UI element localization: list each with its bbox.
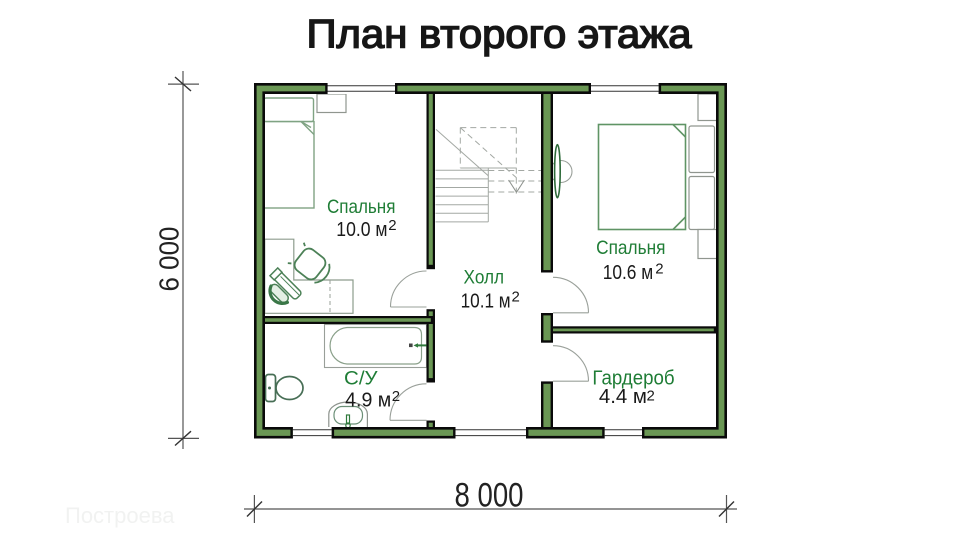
svg-text:4.9 м: 4.9 м: [345, 389, 391, 412]
svg-text:10.1 м: 10.1 м: [461, 290, 511, 312]
svg-text:План второго этажа: План второго этажа: [307, 13, 693, 57]
svg-text:2: 2: [512, 289, 520, 306]
svg-text:2: 2: [392, 388, 400, 405]
svg-text:2: 2: [647, 388, 655, 405]
svg-text:10.6 м: 10.6 м: [603, 262, 654, 284]
svg-text:Спальня: Спальня: [327, 196, 396, 218]
svg-text:10.0 м: 10.0 м: [336, 219, 387, 241]
svg-text:2: 2: [388, 217, 396, 234]
svg-text:4.4 м: 4.4 м: [599, 386, 647, 408]
svg-text:Спальня: Спальня: [596, 237, 665, 259]
svg-text:2: 2: [655, 261, 663, 278]
svg-text:Построева: Построева: [65, 503, 175, 528]
svg-text:С/У: С/У: [344, 368, 378, 390]
svg-text:6 000: 6 000: [154, 227, 185, 292]
svg-text:Холл: Холл: [464, 266, 505, 288]
svg-text:8 000: 8 000: [455, 477, 524, 515]
